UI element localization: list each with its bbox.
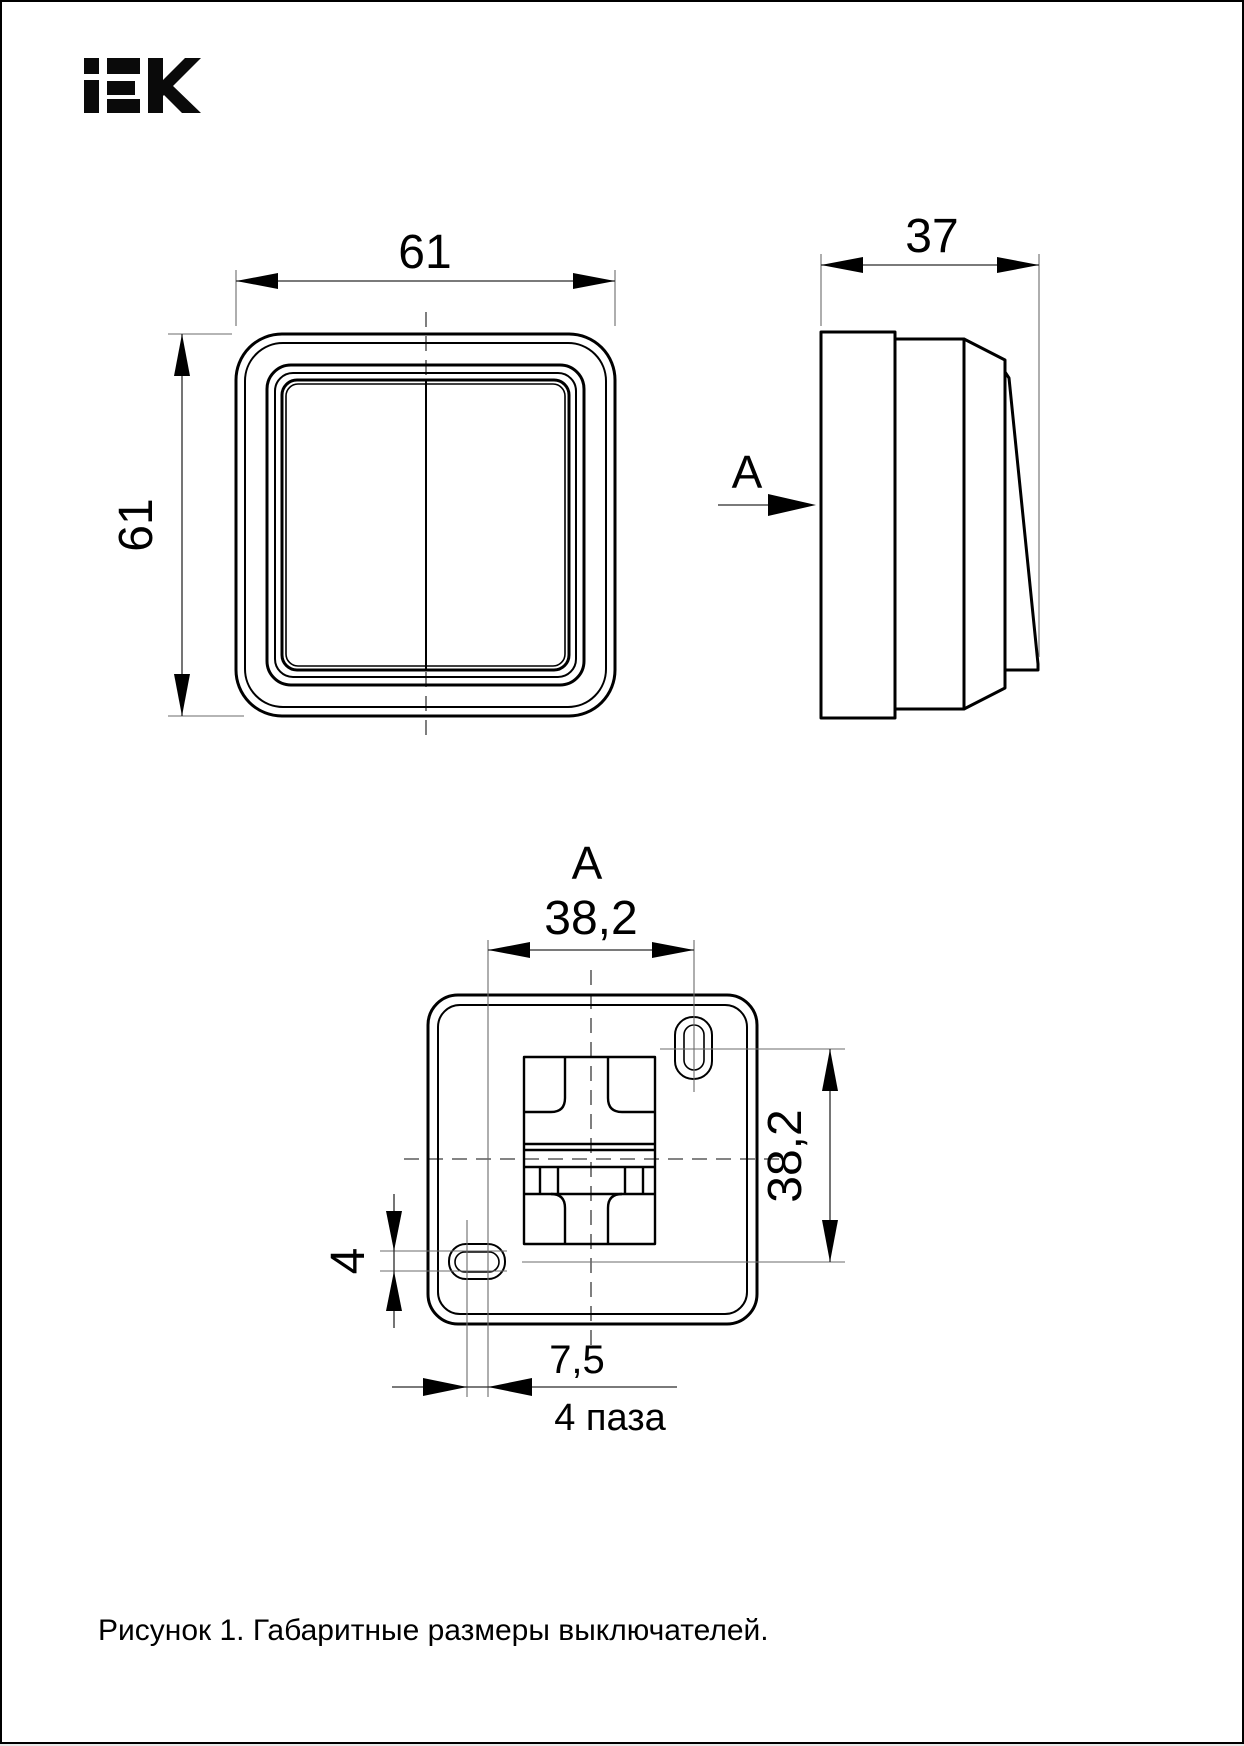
slot-width-dimension: 4 (322, 1194, 507, 1328)
side-body (895, 339, 964, 709)
slot-offset-dimension: 7,5 4 паза (392, 1220, 677, 1439)
side-view (821, 332, 1038, 718)
slot-width-label: 4 (322, 1248, 375, 1275)
section-arrow: А (718, 446, 816, 516)
mounting-slot-bottom-left (449, 1244, 505, 1279)
slot-offset-label: 7,5 (549, 1338, 605, 1382)
drawing-sheet: IEK 61 (0, 0, 1244, 1744)
section-arrow-label: А (732, 446, 763, 498)
side-base-plate (821, 332, 895, 718)
figure-caption: Рисунок 1. Габаритные размеры выключател… (98, 1614, 769, 1647)
bottom-view-label: А (572, 837, 603, 889)
side-rocker (1005, 372, 1038, 670)
iek-logo: IEK (84, 58, 201, 113)
front-view (236, 312, 615, 742)
bottom-mechanism (524, 1057, 655, 1244)
hole-spacing-horizontal-label: 38,2 (544, 892, 637, 945)
hole-spacing-vertical-dimension: 38,2 (522, 1049, 845, 1262)
front-width-label: 61 (398, 226, 451, 279)
front-height-dimension: 61 (110, 334, 244, 716)
bottom-view (404, 970, 782, 1350)
front-height-label: 61 (110, 498, 163, 551)
front-width-dimension: 61 (236, 226, 615, 326)
side-depth-label: 37 (905, 210, 958, 263)
hole-spacing-vertical-label: 38,2 (759, 1109, 812, 1202)
slots-count-note: 4 паза (554, 1397, 666, 1439)
side-cover (964, 339, 1005, 709)
